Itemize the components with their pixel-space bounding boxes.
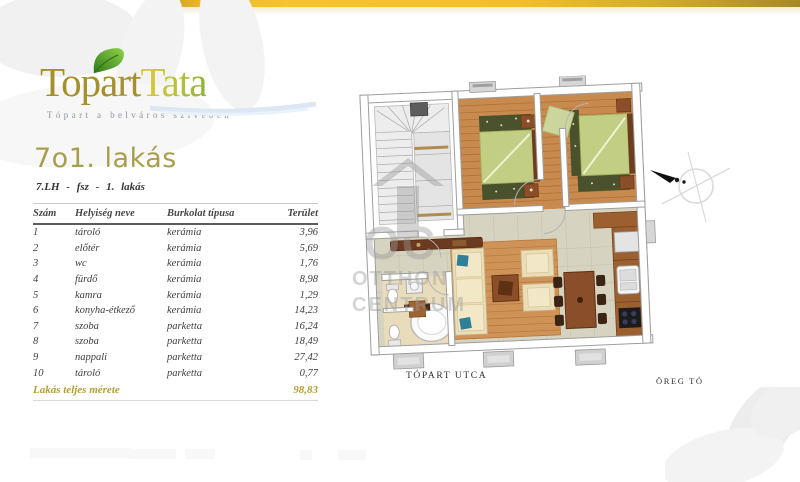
- north-arrow: [650, 170, 676, 183]
- cell-name: fürdő: [75, 274, 167, 285]
- listing-subtitle: 7.LH - fsz - 1. lakás: [36, 181, 145, 193]
- cell-area: 3,96: [275, 227, 318, 238]
- cell-name: wc: [75, 258, 167, 269]
- cell-area: 0,77: [275, 368, 318, 379]
- flyer-page: TopartTata Tópart a belváros szívében 7o…: [0, 0, 800, 482]
- leaf-icon: [90, 47, 126, 75]
- cell-num: 3: [33, 258, 75, 269]
- floor-plan: [351, 73, 664, 392]
- cell-area: 5,69: [275, 243, 318, 254]
- table-row: 9 nappali parketta 27,42: [33, 350, 318, 366]
- cell-num: 10: [33, 368, 75, 379]
- water-swoosh: [148, 100, 318, 116]
- table-row: 1 tároló kerámia 3,96: [33, 225, 318, 241]
- table-total-row: Lakás teljes mérete 98,83: [33, 381, 318, 401]
- cell-name: szoba: [75, 336, 167, 347]
- cell-area: 18,49: [275, 336, 318, 347]
- cell-surface: kerámia: [167, 243, 275, 254]
- pillow: [459, 317, 472, 330]
- ghost-text-block: [130, 449, 176, 459]
- cell-num: 2: [33, 243, 75, 254]
- fridge: [614, 231, 639, 252]
- dining-table: [553, 271, 607, 329]
- table-row: 8 szoba parketta 18,49: [33, 334, 318, 350]
- header-szam: Szám: [33, 208, 75, 219]
- cell-num: 9: [33, 352, 75, 363]
- cell-num: 7: [33, 321, 75, 332]
- cell-area: 1,76: [275, 258, 318, 269]
- brand-wordmark: TopartTata: [40, 60, 340, 104]
- cell-area: 16,24: [275, 321, 318, 332]
- cell-name: tároló: [75, 368, 167, 379]
- cell-surface: kerámia: [167, 305, 275, 316]
- cell-name: előtér: [75, 243, 167, 254]
- table-row: 4 fürdő kerámia 8,98: [33, 272, 318, 288]
- lake-label: ÖREG TÓ: [656, 376, 704, 386]
- pillow: [457, 255, 469, 267]
- cell-surface: parketta: [167, 352, 275, 363]
- cell-area: 14,23: [275, 305, 318, 316]
- room-table: Szám Helyiség neve Burkolat típusa Terül…: [33, 203, 318, 401]
- toilet: [387, 289, 398, 303]
- listing-title: 7o1. lakás: [34, 143, 177, 174]
- cell-name: tároló: [75, 227, 167, 238]
- cell-surface: kerámia: [167, 290, 275, 301]
- compass-icon: [646, 146, 730, 230]
- floor-plan-drawing: [351, 73, 664, 392]
- cell-area: 27,42: [275, 352, 318, 363]
- header-burkolat: Burkolat típusa: [167, 208, 275, 219]
- cell-surface: parketta: [167, 368, 275, 379]
- ghost-text-block: [338, 450, 366, 460]
- cell-name: konyha-étkező: [75, 305, 167, 316]
- cell-surface: parketta: [167, 336, 275, 347]
- cell-surface: kerámia: [167, 227, 275, 238]
- table-row: 2 előtér kerámia 5,69: [33, 241, 318, 257]
- cell-name: szoba: [75, 321, 167, 332]
- total-value: 98,83: [275, 384, 318, 396]
- ghost-text-block: [185, 449, 215, 459]
- brand-word-second: Tata: [140, 59, 206, 105]
- ghost-text-block: [300, 450, 312, 460]
- header-terulet: Terület: [275, 208, 318, 219]
- cell-num: 6: [33, 305, 75, 316]
- cell-num: 5: [33, 290, 75, 301]
- chimney: [410, 102, 428, 116]
- sofa: [452, 248, 488, 335]
- table-row: 7 szoba parketta 16,24: [33, 319, 318, 335]
- table-row: 6 konyha-étkező kerámia 14,23: [33, 303, 318, 319]
- cell-name: nappali: [75, 352, 167, 363]
- coffee-table: [492, 275, 519, 302]
- table-row: 10 tároló parketta 0,77: [33, 365, 318, 381]
- table-row: 3 wc kerámia 1,76: [33, 256, 318, 272]
- ghost-text-block: [30, 448, 132, 458]
- cell-surface: kerámia: [167, 274, 275, 285]
- cell-surface: parketta: [167, 321, 275, 332]
- total-label: Lakás teljes mérete: [33, 384, 275, 396]
- table-row: 5 kamra kerámia 1,29: [33, 287, 318, 303]
- street-label: TÓPART UTCA: [406, 371, 487, 381]
- cell-name: kamra: [75, 290, 167, 301]
- toilet-2: [389, 325, 400, 339]
- table-header-row: Szám Helyiség neve Burkolat típusa Terül…: [33, 204, 318, 225]
- cell-area: 1,29: [275, 290, 318, 301]
- cell-num: 4: [33, 274, 75, 285]
- stove: [618, 307, 641, 328]
- cell-area: 8,98: [275, 274, 318, 285]
- leaf-decoration-bottom-right: [665, 387, 800, 482]
- cell-surface: kerámia: [167, 258, 275, 269]
- header-helyiseg: Helyiség neve: [75, 208, 167, 219]
- brand-logo: TopartTata Tópart a belváros szívében: [40, 60, 340, 120]
- cell-num: 8: [33, 336, 75, 347]
- bedroom-1: [479, 114, 541, 200]
- cell-num: 1: [33, 227, 75, 238]
